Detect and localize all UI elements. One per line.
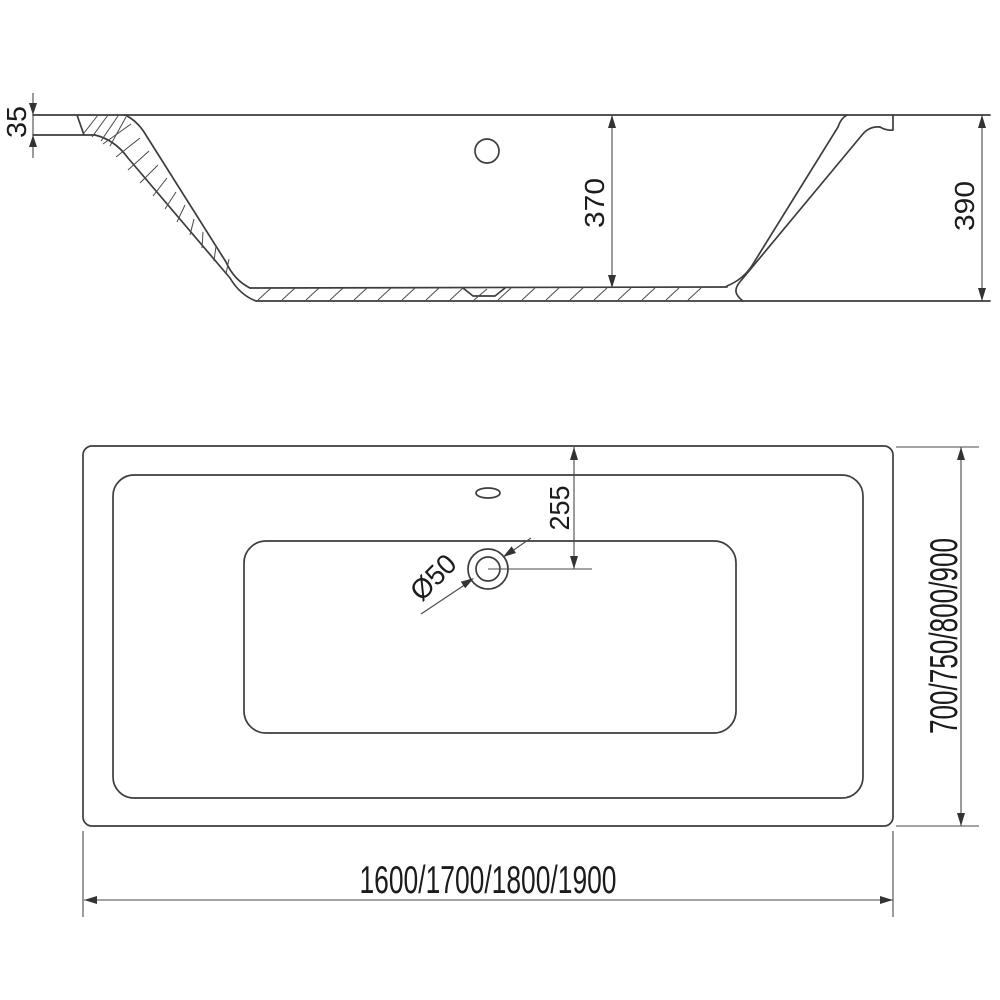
overflow-hole-section bbox=[475, 139, 499, 163]
dimension-drain-diameter: Ø50 bbox=[404, 538, 531, 614]
dimension-rim-thickness: 35 bbox=[1, 93, 37, 158]
section-view: 35 370 390 bbox=[1, 93, 990, 301]
dimension-total-height: 390 bbox=[949, 115, 986, 301]
tub-rim-opening bbox=[113, 475, 863, 798]
dim-width-label: 700/750/800/900 bbox=[923, 538, 966, 734]
dim-rim-thickness-label: 35 bbox=[1, 106, 32, 138]
drain bbox=[468, 549, 592, 589]
plan-view: 255 Ø50 1600/1700/1800/1900 700/750/800/… bbox=[83, 446, 979, 917]
technical-drawing: 35 370 390 255 bbox=[0, 0, 1000, 1000]
dim-length-label: 1600/1700/1800/1900 bbox=[360, 859, 617, 902]
tub-floor-edge bbox=[244, 541, 736, 733]
dim-inner-depth-label: 370 bbox=[579, 178, 610, 228]
tub-outer-edge bbox=[83, 446, 893, 826]
overflow-hole-plan bbox=[476, 488, 500, 498]
dimension-width: 700/750/800/900 bbox=[896, 447, 979, 826]
section-outline bbox=[33, 115, 990, 301]
dimension-length: 1600/1700/1800/1900 bbox=[83, 831, 893, 917]
dim-drain-offset-label: 255 bbox=[544, 486, 575, 531]
dim-total-height-label: 390 bbox=[949, 181, 980, 231]
floor-hatching bbox=[258, 288, 701, 300]
dimension-inner-depth: 370 bbox=[579, 115, 616, 288]
dim-drain-diameter-label: Ø50 bbox=[404, 548, 463, 607]
dimension-drain-offset: 255 bbox=[544, 447, 578, 569]
